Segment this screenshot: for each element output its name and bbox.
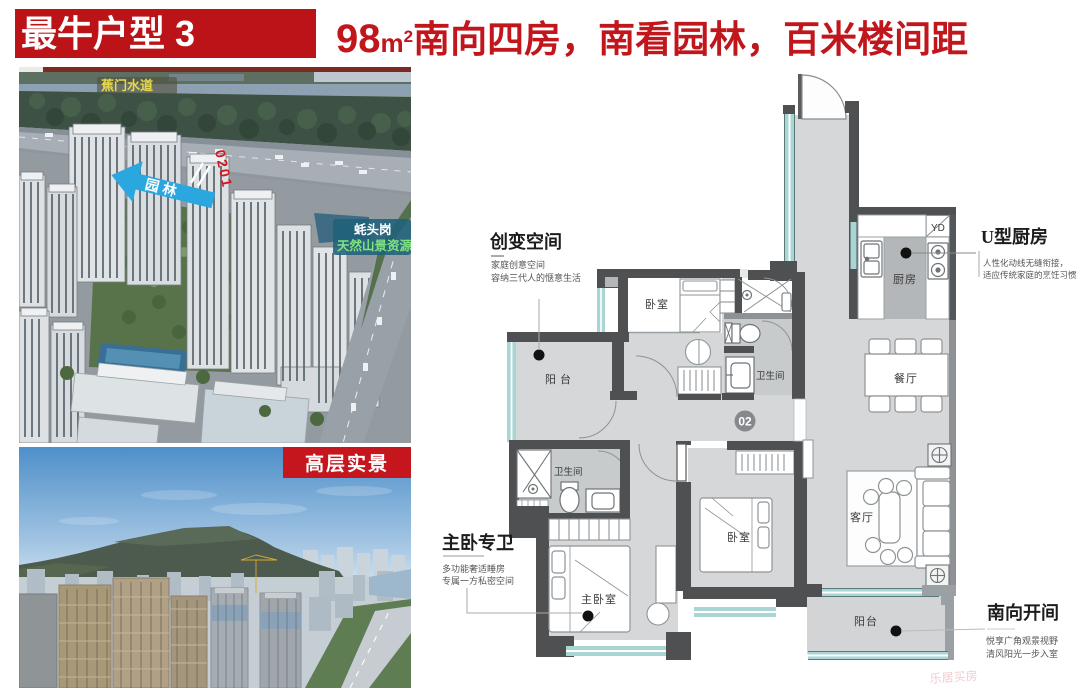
svg-text:阳台: 阳台 [854,614,878,628]
svg-text:多功能奢适睡房: 多功能奢适睡房 [442,563,505,574]
svg-text:专属一方私密空间: 专属一方私密空间 [442,575,514,586]
svg-text:高层实景: 高层实景 [305,452,389,475]
svg-text:悦享广角观景视野: 悦享广角观景视野 [986,635,1058,646]
svg-text:02: 02 [738,415,752,429]
svg-text:适应传统家庭的烹饪习惯: 适应传统家庭的烹饪习惯 [983,270,1077,280]
svg-text:蕉门水道: 蕉门水道 [101,78,153,93]
svg-text:卧室: 卧室 [727,530,751,544]
svg-text:蚝头岗: 蚝头岗 [354,222,392,237]
svg-text:主卧专卫: 主卧专卫 [442,532,514,553]
svg-text:YD: YD [931,223,945,234]
svg-text:家庭创意空间: 家庭创意空间 [491,259,545,270]
svg-text:卧室: 卧室 [645,297,669,311]
svg-text:天然山景资源: 天然山景资源 [337,238,411,253]
svg-text:厨房: 厨房 [893,273,917,286]
svg-text:U型厨房: U型厨房 [981,226,1048,247]
svg-text:乐居买房: 乐居买房 [929,668,978,686]
svg-text:餐厅: 餐厅 [894,371,918,385]
svg-text:阳台: 阳台 [545,372,575,386]
svg-text:清风阳光一步入室: 清风阳光一步入室 [986,648,1058,659]
svg-text:卫生间: 卫生间 [554,466,583,478]
svg-text:卫生间: 卫生间 [756,370,785,382]
svg-text:创变空间: 创变空间 [489,231,562,252]
svg-text:南向开间: 南向开间 [987,602,1059,623]
svg-text:容纳三代人的惬意生活: 容纳三代人的惬意生活 [491,272,581,283]
svg-text:人性化动线无缝衔接，: 人性化动线无缝衔接， [983,258,1068,268]
svg-text:客厅: 客厅 [850,510,874,524]
svg-text:主卧室: 主卧室 [581,592,617,606]
